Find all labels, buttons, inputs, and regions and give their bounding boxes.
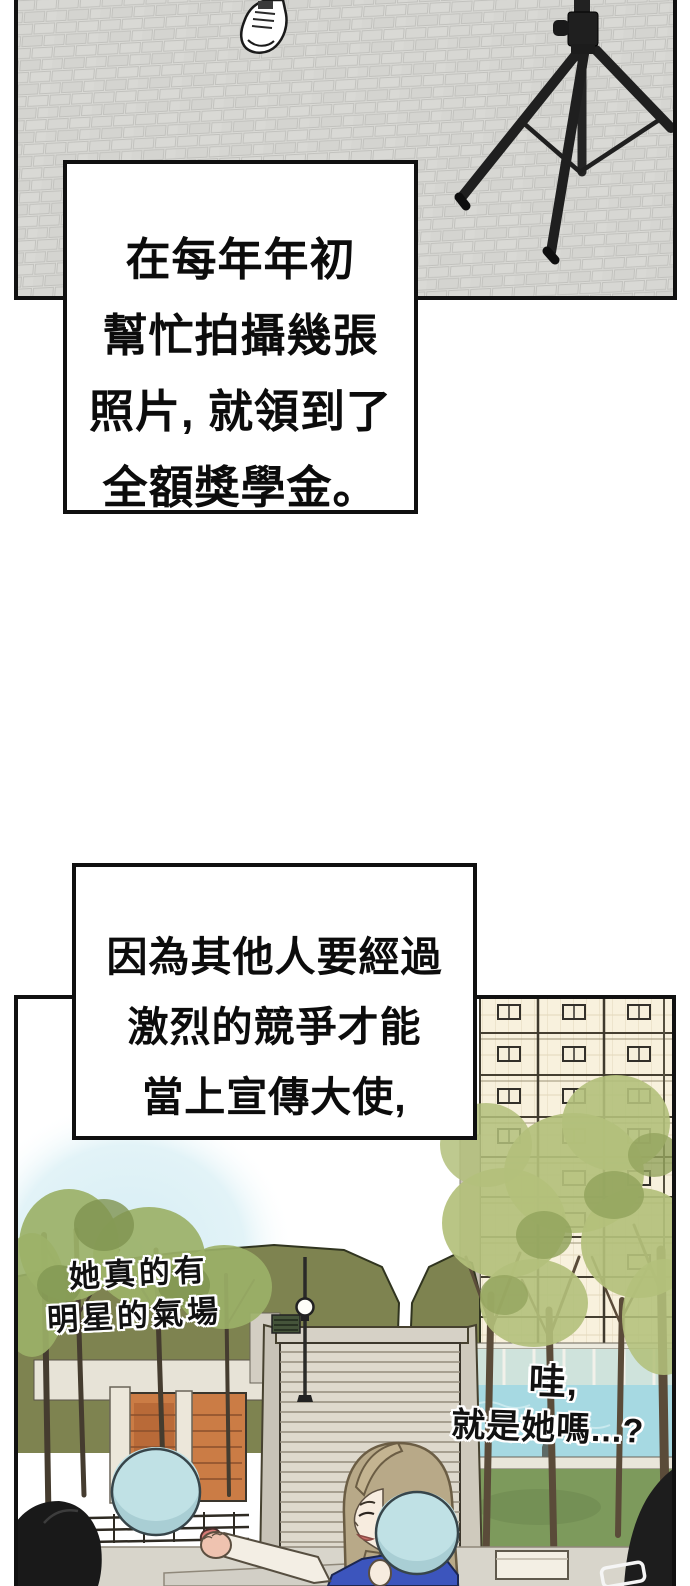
narration2-line2: 激烈的競爭才能 <box>76 992 473 1062</box>
panel1-border-right <box>673 0 677 300</box>
handwritten-text-right: 哇, 就是她嗎...? <box>450 1356 683 1456</box>
planter <box>496 1551 568 1579</box>
comic-page: 在每年年初 幫忙拍攝幾張 照片, 就領到了 全額獎學金。 因為其他人要經過 激烈… <box>0 0 690 1586</box>
raised-hand <box>369 1560 391 1586</box>
narration1-line4: 全額獎學金。 <box>67 450 414 526</box>
panel2-border-left <box>14 995 18 1586</box>
narration1-line2: 幫忙拍攝幾張 <box>67 298 414 374</box>
handwritten-text-left: 她真的有 明星的氣場 <box>44 1246 268 1341</box>
narration2-line3: 當上宣傳大使, <box>76 1062 473 1132</box>
panel1-border-left <box>14 0 18 300</box>
narration2-line1: 因為其他人要經過 <box>76 922 473 992</box>
narration1-line1: 在每年年初 <box>67 222 414 298</box>
hw-right-line1: 哇, <box>452 1356 683 1410</box>
narration-box-2: 因為其他人要經過 激烈的競爭才能 當上宣傳大使, <box>72 863 477 1140</box>
hw-right-line2: 就是她嗎...? <box>450 1402 681 1456</box>
hand <box>201 1532 231 1558</box>
panel2-border-right <box>672 995 676 1586</box>
fan-paddle-left <box>112 1447 200 1535</box>
narration-box-1: 在每年年初 幫忙拍攝幾張 照片, 就領到了 全額獎學金。 <box>63 160 418 514</box>
fan-paddle-right <box>376 1491 458 1574</box>
narration1-line3: 照片, 就領到了 <box>67 374 414 450</box>
